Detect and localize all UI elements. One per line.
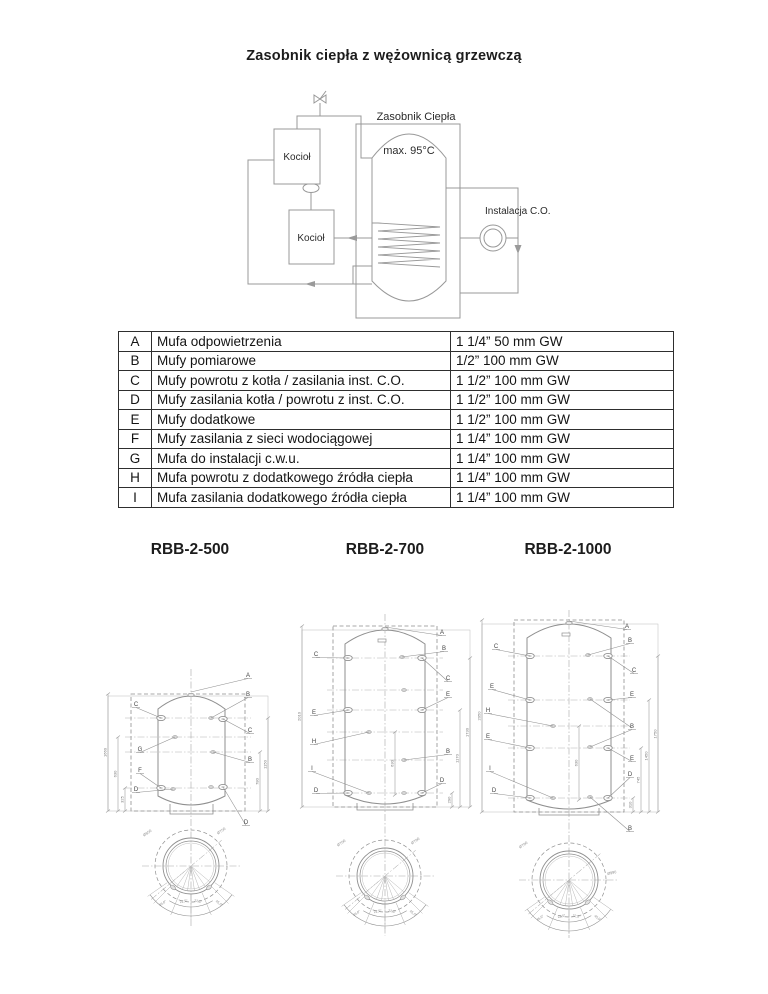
port-description: Mufa powrotu z dodatkowego źródła ciepła xyxy=(152,468,451,488)
tank-label: Zasobnik Ciepła xyxy=(377,111,457,123)
dimension-label: 290 xyxy=(447,796,452,803)
port-callout-letter: I xyxy=(489,766,491,772)
diameter-label: Ø750 xyxy=(216,827,226,836)
port-size: 1/2” 100 mm GW xyxy=(451,351,674,371)
dimension-label: 325 xyxy=(120,795,125,802)
max-temp-label: max. 95°C xyxy=(383,145,435,157)
angle-label: 22,5° xyxy=(572,914,581,920)
table-row: GMufa do instalacji c.w.u.1 1/4” 100 mm … xyxy=(119,449,674,469)
table-row: AMufa odpowietrzenia1 1/4” 50 mm GW xyxy=(119,332,674,352)
pipe xyxy=(446,188,518,293)
port-size: 1 1/2” 100 mm GW xyxy=(451,371,674,391)
port-callout-letter: B xyxy=(628,826,632,832)
angle-label: 22,5° xyxy=(557,913,566,919)
hydraulic-schematic: Zasobnik Ciepła max. 95°C Kocioł Kocioł … xyxy=(228,88,573,330)
dimension-label: 310 xyxy=(628,801,633,808)
port-callout-letter: D xyxy=(440,778,445,784)
dimension-label: 745 xyxy=(636,776,641,783)
port-callout-letter: A xyxy=(440,630,444,636)
dimension-label: 1660 xyxy=(103,747,108,757)
port-code: F xyxy=(119,429,152,449)
port-callout-letter: D xyxy=(314,788,319,794)
diameter-label: Ø790 xyxy=(518,841,528,850)
port-description: Mufy powrotu z kotła / zasilania inst. C… xyxy=(152,371,451,391)
angle-label: 22,5° xyxy=(388,909,397,915)
technical-drawing-rbb-2-1000: ACBCEEHBEEIDDB20506301750145074531045,0°… xyxy=(472,608,668,951)
angle-label: 45,0° xyxy=(215,899,224,907)
port-callout-letter: G xyxy=(138,747,143,753)
port-callout-letter: C xyxy=(446,676,451,682)
port-code: D xyxy=(119,390,152,410)
port-size: 1 1/4” 100 mm GW xyxy=(451,449,674,469)
dimension-label: 780 xyxy=(255,777,260,784)
dimension-label: 1150 xyxy=(263,759,268,768)
dimension-label: 630 xyxy=(574,759,579,766)
port-callout-letter: E xyxy=(312,710,316,716)
model-label-rbb-2-1000: RBB-2-1000 xyxy=(483,541,653,559)
port-description: Mufy zasilania z sieci wodociągowej xyxy=(152,429,451,449)
angle-label: 45,0° xyxy=(593,914,602,922)
port-callout-letter: A xyxy=(246,673,250,679)
table-row: CMufy powrotu z kotła / zasilania inst. … xyxy=(119,371,674,391)
port-code: B xyxy=(119,351,152,371)
port-callout-letter: B xyxy=(246,692,250,698)
boiler-bottom-label: Kocioł xyxy=(297,233,325,244)
port-callout-letter: A xyxy=(625,624,629,630)
ports-table-body: AMufa odpowietrzenia1 1/4” 50 mm GWBMufy… xyxy=(119,332,674,508)
pump-icon-inner xyxy=(484,229,502,247)
boiler-top-label: Kocioł xyxy=(283,152,311,163)
angle-label: 45,0° xyxy=(409,909,418,917)
flow-arrow-left xyxy=(347,235,357,241)
page-title: Zasobnik ciepła z wężownicą grzewczą xyxy=(0,48,768,64)
port-callout-letter: H xyxy=(486,708,490,714)
port-size: 1 1/4” 100 mm GW xyxy=(451,429,674,449)
port-callout-letter: D xyxy=(134,787,139,793)
port-description: Mufa odpowietrzenia xyxy=(152,332,451,352)
diameter-label: Ø990 xyxy=(607,870,617,876)
tank-vessel xyxy=(372,134,446,301)
angle-label: 22,5° xyxy=(373,908,382,914)
installation-label: Instalacja C.O. xyxy=(485,206,551,217)
diameter-label: Ø790 xyxy=(410,837,420,846)
port-size: 1 1/4” 50 mm GW xyxy=(451,332,674,352)
port-callout-letter: E xyxy=(630,692,634,698)
dimension-label: 2050 xyxy=(477,711,482,721)
port-description: Mufa zasilania dodatkowego źródła ciepła xyxy=(152,488,451,508)
flow-arrow-left xyxy=(305,281,315,287)
angle-label: 45,0° xyxy=(352,909,361,917)
port-code: E xyxy=(119,410,152,430)
port-callout-letter: H xyxy=(312,739,316,745)
document-page: { "page": { "title": "Zasobnik ciepła z … xyxy=(0,0,768,994)
port-code: C xyxy=(119,371,152,391)
port-callout-letter: D xyxy=(244,820,249,826)
technical-drawing-rbb-2-700: ACBCEEHBIDD20106301730117029045,0°22,5°2… xyxy=(290,610,480,949)
port-callout-letter: D xyxy=(492,788,497,794)
port-description: Mufy zasilania kotła / powrotu z inst. C… xyxy=(152,390,451,410)
table-row: DMufy zasilania kotła / powrotu z inst. … xyxy=(119,390,674,410)
port-code: A xyxy=(119,332,152,352)
port-callout-letter: E xyxy=(490,684,494,690)
port-callout-letter: C xyxy=(134,702,139,708)
port-callout-letter: C xyxy=(632,668,637,674)
technical-drawing-rbb-2-500: ACBCGBFDD1660630325115078045,0°22,5°22,5… xyxy=(98,642,280,939)
port-callout-letter: E xyxy=(486,734,490,740)
dimension-label: 630 xyxy=(390,759,395,766)
port-size: 1 1/4” 100 mm GW xyxy=(451,488,674,508)
port-callout-letter: C xyxy=(314,652,319,658)
diameter-label: Ø650 xyxy=(142,829,152,838)
port-size: 1 1/2” 100 mm GW xyxy=(451,410,674,430)
port-callout-letter: C xyxy=(248,728,253,734)
dimension-label: 1170 xyxy=(455,753,460,762)
port-callout-letter: F xyxy=(138,768,142,774)
table-row: FMufy zasilania z sieci wodociągowej1 1/… xyxy=(119,429,674,449)
port-description: Mufy pomiarowe xyxy=(152,351,451,371)
table-row: BMufy pomiarowe1/2” 100 mm GW xyxy=(119,351,674,371)
port-callout-letter: C xyxy=(494,644,499,650)
port-description: Mufa do instalacji c.w.u. xyxy=(152,449,451,469)
ports-table: AMufa odpowietrzenia1 1/4” 50 mm GWBMufy… xyxy=(118,331,674,508)
flow-arrow-down xyxy=(515,245,522,254)
port-description: Mufy dodatkowe xyxy=(152,410,451,430)
expansion-vessel-icon xyxy=(303,184,319,193)
dimension-label: 1750 xyxy=(653,729,658,739)
port-callout-letter: B xyxy=(630,724,634,730)
model-label-rbb-2-500: RBB-2-500 xyxy=(105,541,275,559)
dimension-label: 1450 xyxy=(644,751,649,761)
angle-label: 45,0° xyxy=(536,914,545,922)
model-label-rbb-2-700: RBB-2-700 xyxy=(300,541,470,559)
port-callout-letter: E xyxy=(630,756,634,762)
angle-label: 22,5° xyxy=(194,899,203,905)
port-callout-letter: D xyxy=(628,772,633,778)
port-code: I xyxy=(119,488,152,508)
port-callout-letter: E xyxy=(446,692,450,698)
diameter-label: Ø700 xyxy=(336,839,346,848)
port-callout-letter: B xyxy=(442,646,446,652)
table-row: IMufa zasilania dodatkowego źródła ciepł… xyxy=(119,488,674,508)
angle-label: 22,5° xyxy=(179,898,188,904)
port-size: 1 1/2” 100 mm GW xyxy=(451,390,674,410)
dimension-label: 2010 xyxy=(297,711,302,721)
port-code: H xyxy=(119,468,152,488)
dimension-label: 630 xyxy=(113,770,118,777)
port-callout-letter: B xyxy=(446,749,450,755)
port-callout-letter: B xyxy=(248,757,252,763)
table-row: HMufa powrotu z dodatkowego źródła ciepł… xyxy=(119,468,674,488)
port-callout-letter: I xyxy=(311,766,313,772)
dimension-label: 1730 xyxy=(465,727,470,737)
port-code: G xyxy=(119,449,152,469)
port-callout-letter: B xyxy=(628,638,632,644)
angle-label: 45,0° xyxy=(158,899,167,907)
table-row: EMufy dodatkowe1 1/2” 100 mm GW xyxy=(119,410,674,430)
safety-valve-icon xyxy=(314,91,326,116)
port-size: 1 1/4” 100 mm GW xyxy=(451,468,674,488)
